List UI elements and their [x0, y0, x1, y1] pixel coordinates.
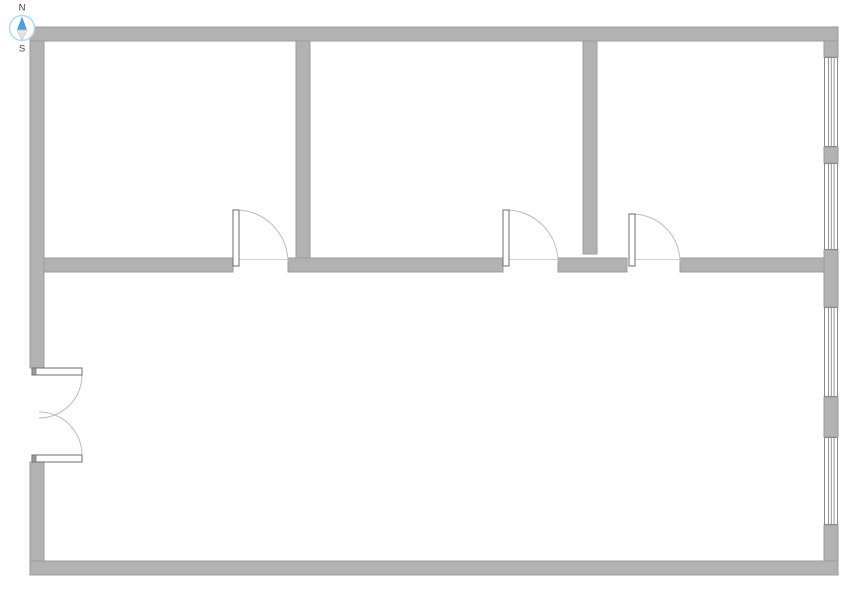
exterior-wall-east-segment-3	[824, 250, 838, 307]
entry-double-door-leaf-bottom	[32, 455, 82, 462]
window-4	[825, 438, 838, 525]
window-2	[825, 164, 838, 250]
door-2-swing-arc	[506, 210, 558, 262]
door-1-swing-arc	[236, 210, 288, 262]
entry-double-door-arc-bottom	[39, 412, 82, 455]
door-3-leaf	[629, 214, 635, 266]
exterior-wall-east-segment-5	[824, 525, 838, 561]
door-1	[233, 210, 288, 266]
door-2	[503, 210, 558, 266]
exterior-wall-west-lower	[30, 462, 44, 561]
floor-plan-svg: N S	[0, 0, 853, 590]
exterior-wall-east-segment-1	[824, 41, 838, 57]
window-3	[825, 308, 838, 397]
entry-double-door-leaf-top-hinge-cap	[32, 368, 36, 375]
interior-wall-vertical-2	[583, 41, 597, 254]
entry-double-door-leaf-bottom-hinge-cap	[32, 455, 36, 462]
interior-wall-horizontal-1	[44, 258, 233, 272]
entry-double-door-leaf-top	[32, 368, 82, 375]
compass-south-label: S	[19, 44, 25, 55]
exterior-wall-east-segment-2	[824, 147, 838, 163]
exterior-wall-west-upper	[30, 41, 44, 368]
door-3-swing-arc	[632, 214, 680, 262]
entry-double-door	[32, 368, 82, 462]
exterior-wall-east-segment-4	[824, 397, 838, 437]
entry-double-door-arc-top	[39, 375, 82, 418]
door-3	[629, 214, 680, 266]
floor-plan: N S	[0, 0, 853, 590]
interior-wall-horizontal-3	[558, 258, 627, 272]
walls-layer	[30, 27, 838, 575]
interior-wall-horizontal-4	[680, 258, 824, 272]
interior-wall-vertical-1	[296, 41, 310, 258]
door-1-leaf	[233, 210, 239, 266]
exterior-wall-north	[30, 27, 838, 41]
window-1	[825, 58, 838, 147]
interior-wall-horizontal-2	[288, 258, 503, 272]
exterior-wall-south	[30, 561, 838, 575]
compass-north-label: N	[19, 3, 26, 14]
door-2-leaf	[503, 210, 509, 266]
